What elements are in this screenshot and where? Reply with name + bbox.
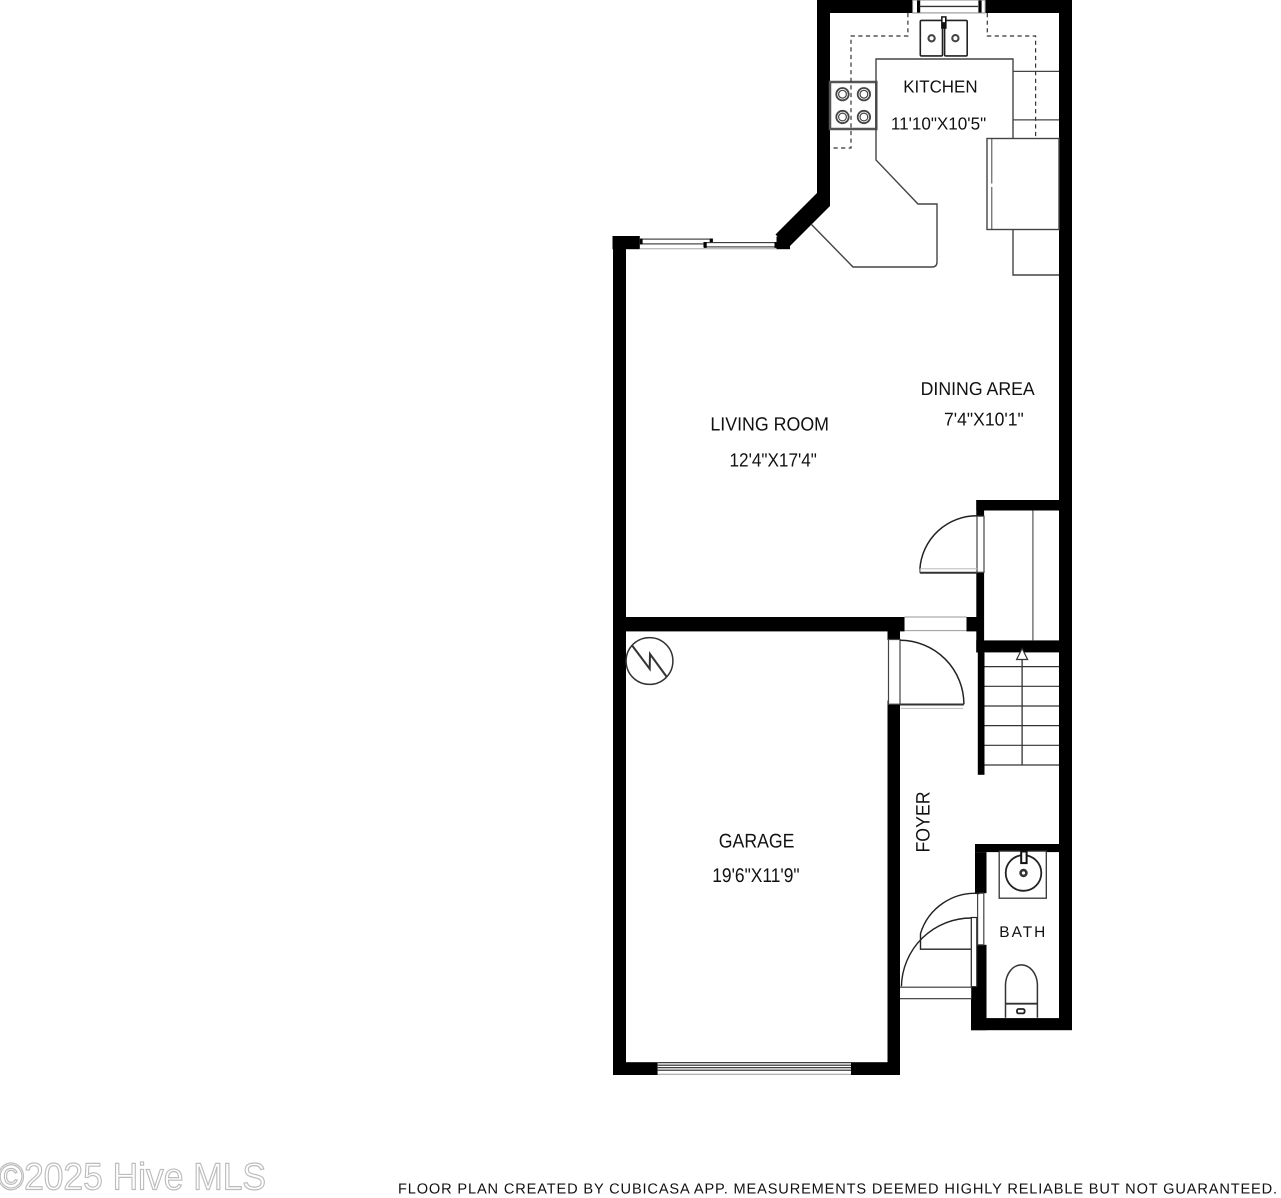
svg-text:11'10"X10'5": 11'10"X10'5" — [891, 113, 986, 133]
svg-text:KITCHEN: KITCHEN — [903, 76, 977, 96]
svg-text:12'4"X17'4": 12'4"X17'4" — [730, 451, 817, 472]
svg-text:LIVING ROOM: LIVING ROOM — [710, 415, 829, 436]
svg-text:FLOOR PLAN CREATED BY CUBICASA: FLOOR PLAN CREATED BY CUBICASA APP. MEAS… — [398, 1182, 1278, 1198]
svg-text:©2025 Hive MLS: ©2025 Hive MLS — [0, 1157, 266, 1198]
svg-text:19'6"X11'9": 19'6"X11'9" — [712, 865, 799, 887]
svg-text:FOYER: FOYER — [912, 792, 934, 853]
svg-text:7'4"X10'1": 7'4"X10'1" — [944, 408, 1024, 429]
svg-text:DINING AREA: DINING AREA — [921, 378, 1036, 399]
svg-text:GARAGE: GARAGE — [719, 830, 795, 852]
svg-text:BATH: BATH — [999, 924, 1045, 941]
